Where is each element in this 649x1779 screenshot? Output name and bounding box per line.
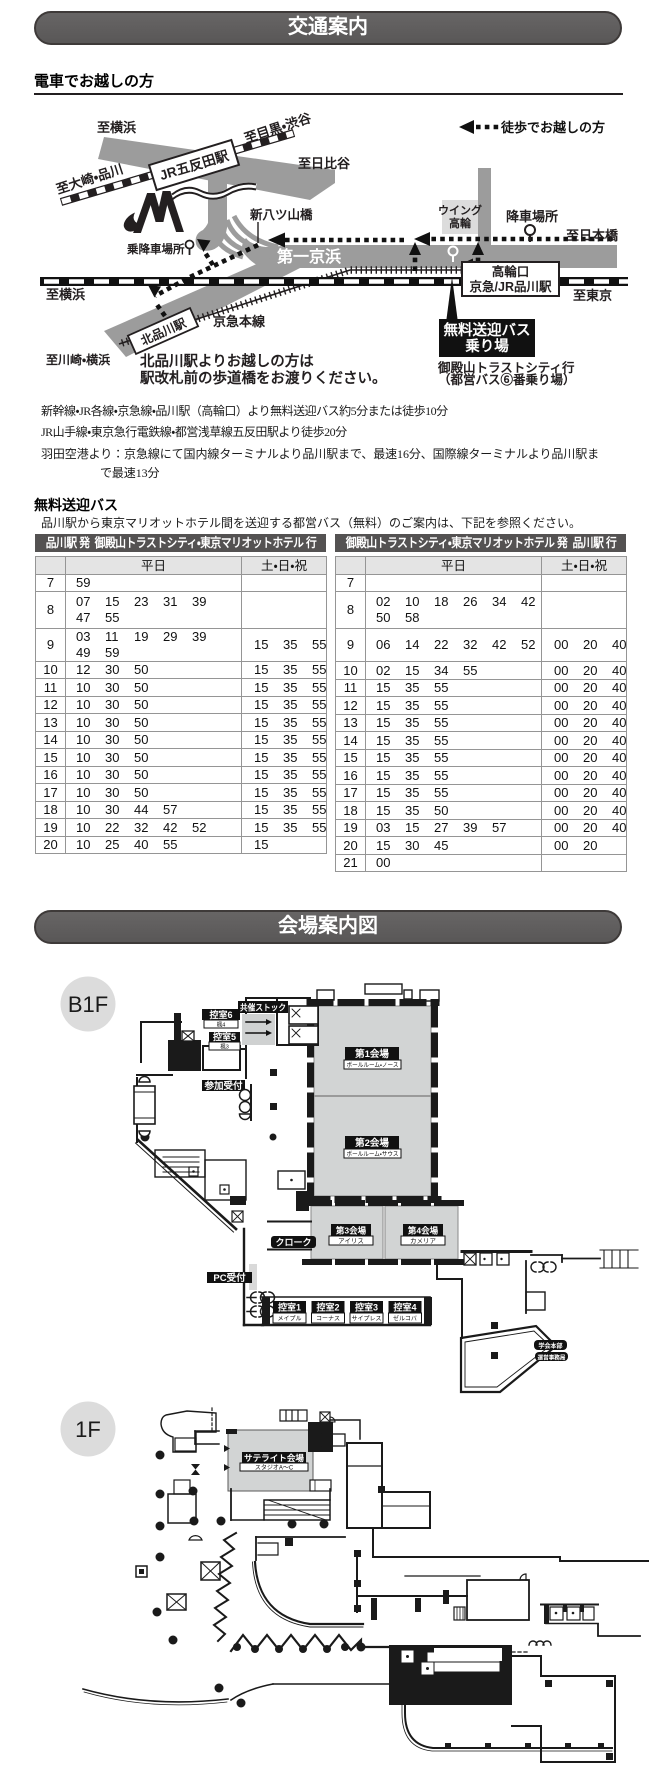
svg-text:京急本線: 京急本線 bbox=[213, 314, 266, 329]
svg-text:至日比谷: 至日比谷 bbox=[298, 156, 350, 171]
svg-text:京急/JR品川駅: 京急/JR品川駅 bbox=[470, 279, 552, 294]
svg-text:第2会場: 第2会場 bbox=[354, 1137, 389, 1149]
svg-text:控室3: 控室3 bbox=[355, 1302, 378, 1313]
svg-text:徒歩でお越しの方: 徒歩でお越しの方 bbox=[500, 120, 605, 135]
svg-text:第一京浜: 第一京浜 bbox=[276, 247, 341, 266]
svg-text:控室6: 控室6 bbox=[209, 1009, 232, 1020]
svg-text:駅改札前の歩道橋をお渡りください。: 駅改札前の歩道橋をお渡りください。 bbox=[139, 369, 387, 387]
svg-text:北品川駅よりお越しの方は: 北品川駅よりお越しの方は bbox=[140, 352, 314, 370]
svg-text:乗り場: 乗り場 bbox=[465, 337, 509, 355]
svg-text:ウイング: ウイング bbox=[438, 203, 482, 217]
svg-text:楓3: 楓3 bbox=[220, 1043, 229, 1051]
svg-text:高輪: 高輪 bbox=[449, 216, 472, 230]
svg-text:至川崎・横浜: 至川崎・横浜 bbox=[46, 352, 110, 367]
svg-text:新八ツ山橋: 新八ツ山橋 bbox=[249, 207, 313, 222]
svg-text:控室4: 控室4 bbox=[393, 1302, 416, 1313]
svg-text:無料送迎バス: 無料送迎バス bbox=[444, 321, 531, 339]
svg-text:アイリス: アイリス bbox=[338, 1237, 364, 1245]
svg-text:スタジオA～C: スタジオA～C bbox=[255, 1464, 294, 1472]
svg-text:（都営バス⑥番乗り場）: （都営バス⑥番乗り場） bbox=[438, 372, 576, 387]
svg-text:サイプレス: サイプレス bbox=[351, 1316, 381, 1323]
svg-text:運営事務局: 運営事務局 bbox=[538, 1354, 566, 1362]
svg-text:サテライト会場: サテライト会場 bbox=[244, 1453, 304, 1463]
svg-text:控室1: 控室1 bbox=[278, 1302, 301, 1313]
svg-text:至横浜: 至横浜 bbox=[97, 120, 136, 135]
svg-text:1F: 1F bbox=[75, 1417, 101, 1442]
svg-text:メイプル: メイプル bbox=[277, 1316, 301, 1323]
svg-text:至日本橋: 至日本橋 bbox=[566, 228, 619, 243]
svg-text:控室2: 控室2 bbox=[316, 1302, 339, 1313]
svg-text:楓4: 楓4 bbox=[217, 1021, 226, 1029]
svg-text:ボールルーム・ノース: ボールルーム・ノース bbox=[347, 1061, 399, 1069]
svg-text:高輪口: 高輪口 bbox=[492, 264, 530, 279]
svg-text:ボールルーム・サウス: ボールルーム・サウス bbox=[347, 1150, 399, 1158]
svg-text:共催ストック: 共催ストック bbox=[240, 1003, 286, 1013]
svg-text:ゼルコバ: ゼルコバ bbox=[393, 1315, 417, 1323]
svg-text:コーナス: コーナス bbox=[316, 1316, 340, 1323]
svg-text:乗降車場所: 乗降車場所 bbox=[126, 242, 185, 256]
svg-text:至横浜: 至横浜 bbox=[46, 287, 85, 302]
svg-text:B1F: B1F bbox=[68, 992, 108, 1017]
svg-text:学会本部: 学会本部 bbox=[538, 1342, 562, 1350]
svg-text:第4会場: 第4会場 bbox=[407, 1226, 439, 1236]
svg-text:控室5: 控室5 bbox=[213, 1031, 236, 1042]
svg-text:降車場所: 降車場所 bbox=[506, 209, 558, 224]
svg-text:参加受付: 参加受付 bbox=[203, 1080, 243, 1092]
svg-text:第3会場: 第3会場 bbox=[335, 1226, 367, 1236]
svg-text:至東京: 至東京 bbox=[573, 288, 612, 303]
svg-text:クローク: クローク bbox=[275, 1238, 311, 1248]
svg-text:カメリア: カメリア bbox=[410, 1237, 437, 1245]
svg-text:PC受付: PC受付 bbox=[213, 1272, 246, 1284]
svg-text:第1会場: 第1会場 bbox=[354, 1048, 389, 1060]
